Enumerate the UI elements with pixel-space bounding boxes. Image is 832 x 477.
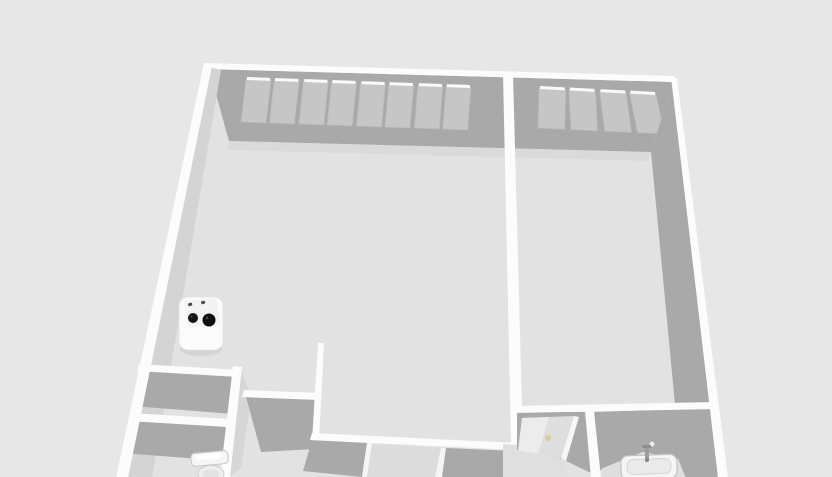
window-strip-left-room-pane <box>327 82 356 126</box>
sink-drain <box>645 458 649 462</box>
stove-burner-large <box>203 314 216 327</box>
door-knob <box>545 435 551 441</box>
window-strip-right-room-pane <box>600 91 632 132</box>
window-strip-left-room-pane <box>443 86 471 130</box>
window-strip-right-room-pane <box>569 90 598 131</box>
window-strip-right-room-pane <box>538 88 566 129</box>
sink-faucet-spout <box>642 445 651 448</box>
window-strip-left-room-pane <box>299 81 329 125</box>
window-strip-left-room-pane <box>269 80 299 124</box>
floor-plan-3d-canvas[interactable] <box>0 0 832 477</box>
floor-plan-3d-viewport[interactable]: 3D floor plan view <box>0 0 832 477</box>
window-strip-left-room-pane <box>241 79 271 123</box>
stove-burner-small <box>188 313 198 323</box>
window-strip-left-room-pane <box>357 83 386 127</box>
south-wall-face-left <box>303 440 367 477</box>
stove-burner-small-glint <box>190 315 192 317</box>
stove-burner-large-glint <box>206 317 209 320</box>
window-strip-left-room-pane <box>385 84 414 128</box>
window-strip-left-room-pane <box>414 85 443 129</box>
doorway-opening-floor <box>367 444 441 477</box>
